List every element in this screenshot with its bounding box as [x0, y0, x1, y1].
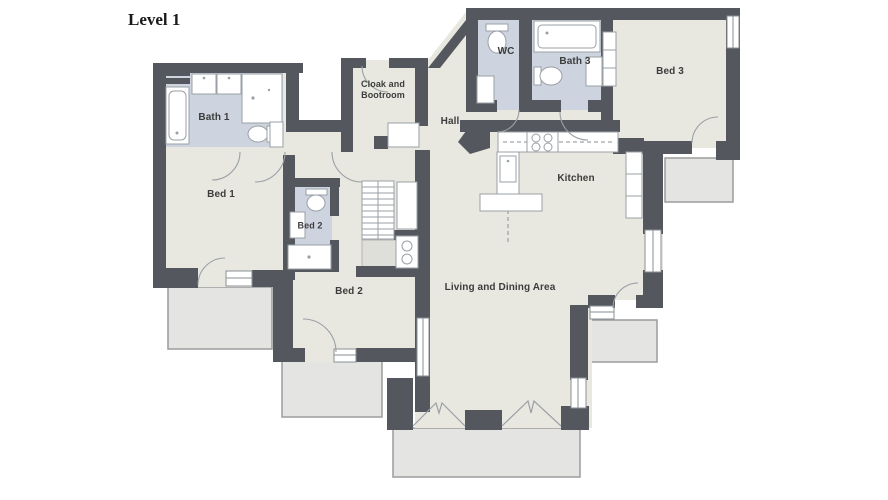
cabinet-bath1 [270, 122, 283, 147]
closet-stairs [397, 182, 417, 229]
toilet-ensuite [306, 189, 327, 211]
window-living-corner [590, 306, 614, 319]
floor-plan-page: Level 1 [0, 0, 888, 500]
floor-plan-drawing [0, 0, 888, 500]
balcony-bed1 [168, 287, 272, 349]
utility-washer [396, 236, 418, 268]
kitchen-counter [498, 132, 618, 152]
balcony-bed3 [665, 158, 733, 202]
window-living-left [417, 318, 429, 376]
room-label-bed1: Bed 1 [207, 189, 235, 202]
balcony-living [393, 428, 580, 477]
shower-bath1 [242, 74, 282, 123]
room-label-hall: Hall [441, 116, 460, 129]
room-label-bath3: Bath 3 [559, 56, 590, 69]
room-label-wc: WC [498, 46, 515, 59]
window-living-right [645, 230, 661, 272]
room-label-kitchen: Kitchen [557, 173, 594, 186]
room-label-bed2: Bed 2 [335, 286, 363, 299]
bathtub-bath1 [166, 87, 189, 144]
window-bed2 [334, 349, 356, 362]
window-living-bottom-right [571, 378, 586, 408]
kitchen-island [480, 194, 542, 211]
shower-ensuite [288, 245, 331, 269]
cupboard-cloak [388, 123, 419, 147]
floor-stair-landing [362, 240, 396, 267]
wardrobe-bed3 [603, 32, 616, 86]
toilet-bath3 [534, 67, 562, 85]
room-label-living: Living and Dining Area [390, 282, 610, 295]
room-label-cloak: Cloak and Bootroom [360, 79, 406, 102]
staircase [362, 181, 394, 239]
room-label-bed2-ensuite: Bed 2 [297, 220, 323, 231]
room-label-bath1: Bath 1 [198, 112, 229, 125]
sinks-bath1 [192, 74, 241, 94]
sink-wc [477, 76, 494, 103]
balcony-living-right [588, 320, 657, 362]
window-bed3 [727, 16, 739, 48]
kitchen-tall-unit [626, 152, 642, 218]
bathtub-bath3 [534, 21, 600, 52]
window-bed1 [226, 271, 252, 286]
balcony-bed2 [282, 360, 382, 417]
room-label-bed3: Bed 3 [656, 66, 684, 79]
